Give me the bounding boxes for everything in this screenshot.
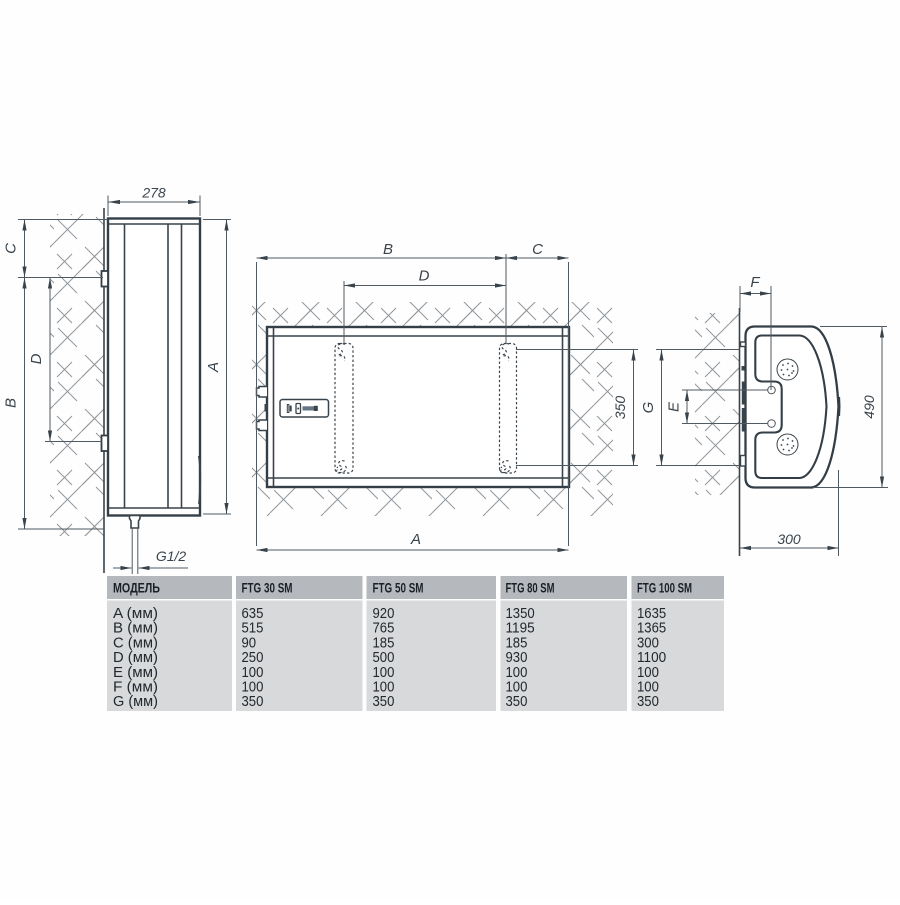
svg-text:350: 350 [637,694,659,710]
svg-text:490: 490 [861,395,877,419]
svg-text:FTG 80 SM: FTG 80 SM [506,580,555,596]
svg-text:250: 250 [242,650,264,666]
svg-text:1100: 1100 [637,650,666,666]
svg-text:278: 278 [141,185,166,201]
svg-text:D (мм): D (мм) [113,650,158,666]
svg-text:МОДЕЛЬ: МОДЕЛЬ [113,580,160,596]
svg-text:D: D [419,268,430,285]
svg-text:300: 300 [777,531,801,547]
svg-text:350: 350 [612,396,628,420]
svg-text:350: 350 [242,694,264,710]
svg-text:FTG 50 SM: FTG 50 SM [373,580,424,596]
svg-text:350: 350 [506,694,528,710]
svg-text:C (мм): C (мм) [113,635,158,651]
svg-text:100: 100 [242,665,264,681]
svg-text:FTG 100 SM: FTG 100 SM [637,580,692,596]
svg-text:100: 100 [373,680,395,696]
svg-text:500: 500 [373,650,395,666]
svg-text:B: B [3,398,20,408]
svg-text:F (мм): F (мм) [113,680,158,696]
svg-text:1350: 1350 [506,606,535,622]
svg-text:G: G [640,401,657,413]
svg-text:B (мм): B (мм) [113,621,158,637]
svg-text:100: 100 [637,665,659,681]
svg-text:185: 185 [373,635,395,651]
svg-text:1195: 1195 [506,621,535,637]
svg-text:C: C [532,241,543,258]
svg-text:D: D [28,353,45,364]
svg-text:350: 350 [373,694,395,710]
svg-text:300: 300 [637,635,659,651]
svg-text:100: 100 [506,680,528,696]
svg-text:1635: 1635 [637,606,666,622]
svg-text:185: 185 [506,635,528,651]
svg-text:515: 515 [242,621,264,637]
svg-text:90: 90 [242,635,257,651]
svg-text:E: E [666,401,683,412]
svg-text:B: B [383,241,393,258]
svg-text:100: 100 [242,680,264,696]
svg-text:920: 920 [373,606,395,622]
svg-text:1365: 1365 [637,621,666,637]
svg-text:635: 635 [242,606,264,622]
svg-text:A: A [410,531,421,548]
svg-text:100: 100 [637,680,659,696]
svg-text:G (мм): G (мм) [113,694,158,710]
svg-text:A (мм): A (мм) [113,606,158,622]
svg-text:765: 765 [373,621,395,637]
svg-text:C: C [3,243,20,254]
svg-text:100: 100 [373,665,395,681]
svg-text:E (мм): E (мм) [113,665,158,681]
svg-text:100: 100 [506,665,528,681]
svg-text:G1/2: G1/2 [156,548,187,564]
svg-text:A: A [205,362,222,373]
svg-text:930: 930 [506,650,528,666]
svg-text:F: F [750,274,760,291]
svg-text:FTG 30 SM: FTG 30 SM [242,580,293,596]
